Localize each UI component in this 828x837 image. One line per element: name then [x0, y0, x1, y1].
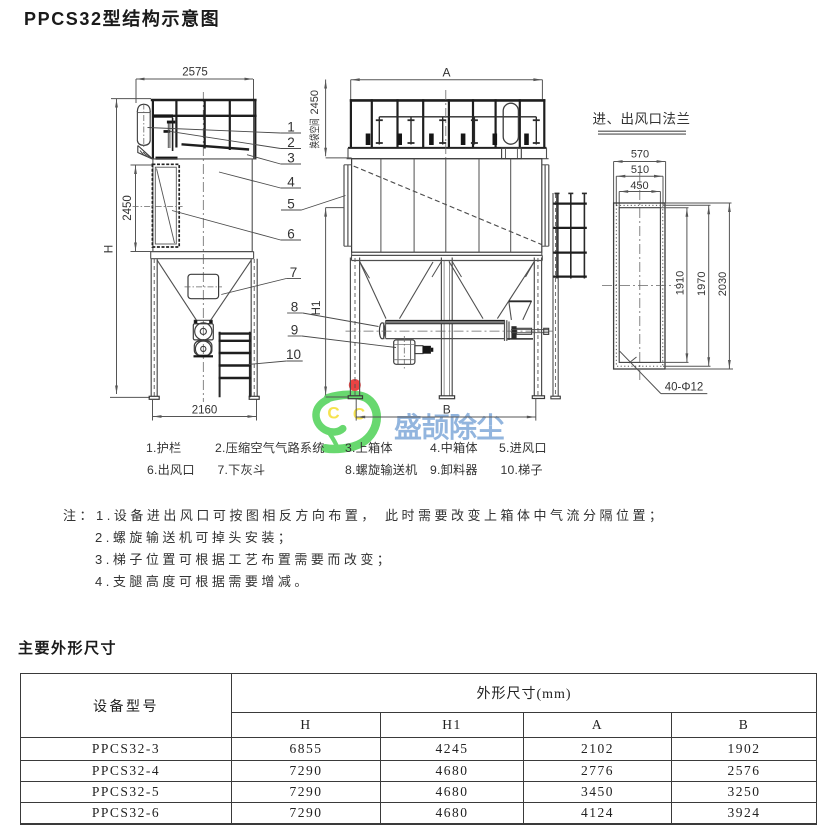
- svg-text:1: 1: [287, 120, 295, 135]
- svg-text:2575: 2575: [182, 67, 208, 79]
- svg-text:C: C: [327, 404, 339, 423]
- svg-text:5: 5: [287, 197, 295, 212]
- svg-text:进、出风口法兰: 进、出风口法兰: [593, 112, 691, 127]
- svg-text:10: 10: [286, 347, 301, 362]
- svg-text:换袋空间: 换袋空间: [308, 118, 321, 148]
- svg-text:H: H: [102, 245, 116, 254]
- svg-text:H1: H1: [311, 301, 323, 316]
- svg-text:A: A: [442, 66, 450, 80]
- svg-text:3: 3: [287, 151, 295, 166]
- svg-text:2030: 2030: [717, 272, 729, 296]
- svg-text:8: 8: [291, 300, 299, 315]
- svg-text:C: C: [353, 405, 365, 424]
- svg-text:570: 570: [631, 149, 649, 161]
- svg-text:2450: 2450: [309, 90, 321, 114]
- svg-text:1970: 1970: [696, 272, 708, 296]
- svg-text:1910: 1910: [674, 271, 686, 295]
- svg-text:2450: 2450: [122, 195, 134, 221]
- svg-text:9: 9: [291, 323, 299, 338]
- svg-text:6: 6: [287, 227, 295, 242]
- svg-text:7: 7: [290, 265, 298, 280]
- svg-text:2160: 2160: [192, 405, 218, 417]
- svg-text:40-Φ12: 40-Φ12: [665, 382, 704, 394]
- svg-text:B: B: [443, 403, 451, 417]
- svg-text:2: 2: [287, 135, 295, 150]
- svg-text:4: 4: [287, 175, 295, 190]
